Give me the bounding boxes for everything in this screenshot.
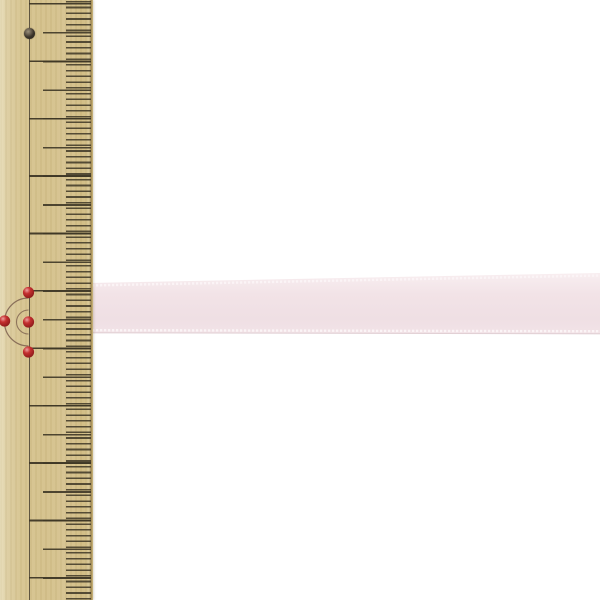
- red-pin: [23, 287, 34, 298]
- ruler-ticks-1mm: [66, 1, 91, 600]
- product-photo: [0, 0, 600, 600]
- pin-compass-group: [0, 280, 46, 365]
- red-pin: [23, 316, 34, 327]
- red-pin: [23, 346, 34, 357]
- ribbon-body: [88, 273, 600, 334]
- red-pin: [0, 315, 10, 326]
- satin-ribbon: [88, 266, 600, 338]
- ruler-hanging-hole: [24, 28, 35, 39]
